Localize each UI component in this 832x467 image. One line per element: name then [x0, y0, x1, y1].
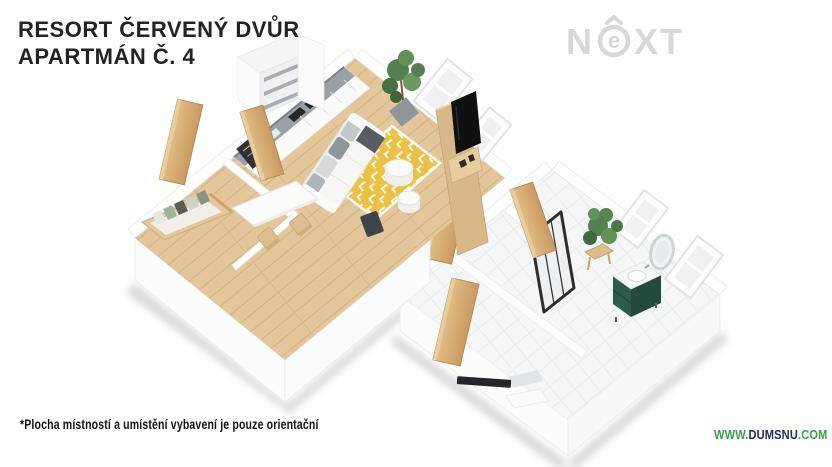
next-logo-graphic: N e XT — [566, 14, 700, 64]
floorplan-render — [0, 0, 832, 467]
door — [159, 99, 203, 185]
next-logo: N e XT — [566, 14, 700, 69]
watermark-prefix: WWW. — [714, 427, 748, 442]
logo-caret-icon — [607, 17, 621, 23]
logo-letter-n: N — [566, 21, 592, 62]
tall-cabinet — [298, 34, 324, 110]
coffee-stool — [398, 191, 420, 213]
sink — [628, 271, 646, 282]
tv-screen — [451, 91, 481, 154]
coffee-table — [385, 160, 413, 187]
watermark-suffix: .COM — [798, 427, 828, 442]
floorplan-page: RESORT ČERVENÝ DVŮR APARTMÁN Č. 4 N e XT… — [0, 0, 832, 467]
title-line-1: RESORT ČERVENÝ DVŮR — [18, 16, 300, 43]
page-title: RESORT ČERVENÝ DVŮR APARTMÁN Č. 4 — [18, 16, 300, 70]
disclaimer-text: *Plocha místností a umístění vybavení je… — [20, 417, 319, 432]
title-line-2: APARTMÁN Č. 4 — [18, 43, 300, 70]
logo-letters-xt: XT — [634, 21, 684, 62]
watermark-name: DUMSNU — [749, 427, 799, 442]
watermark-badge: WWW.DUMSNU.COM — [700, 410, 832, 458]
logo-letter-e: e — [608, 28, 620, 53]
watermark-text: WWW.DUMSNU.COM — [714, 427, 828, 442]
